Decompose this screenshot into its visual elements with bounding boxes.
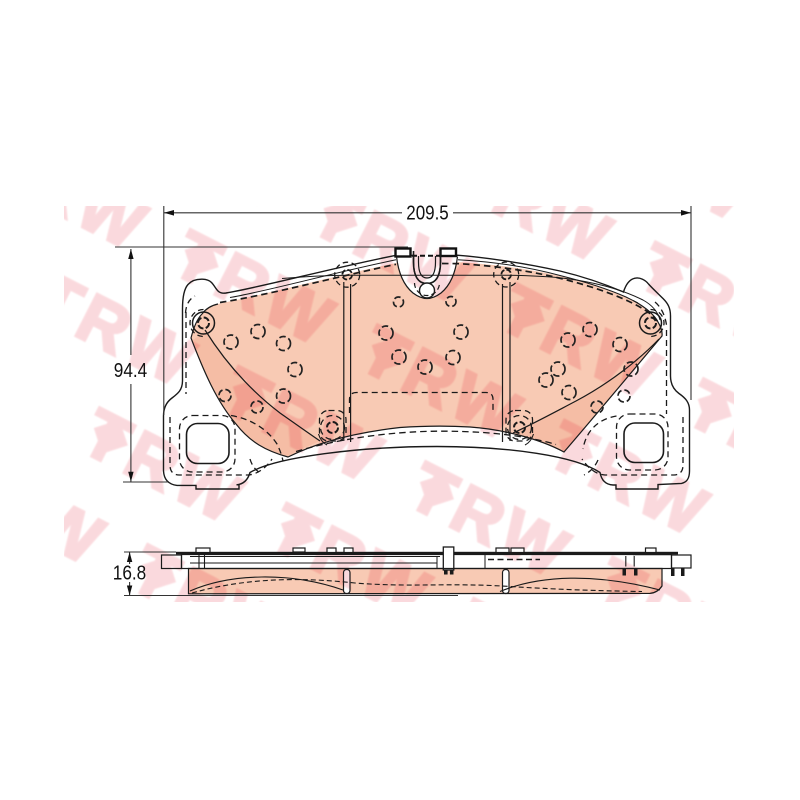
svg-text:94.4: 94.4 bbox=[114, 359, 148, 382]
svg-text:209.5: 209.5 bbox=[406, 202, 449, 225]
svg-text:16.8: 16.8 bbox=[113, 562, 147, 585]
